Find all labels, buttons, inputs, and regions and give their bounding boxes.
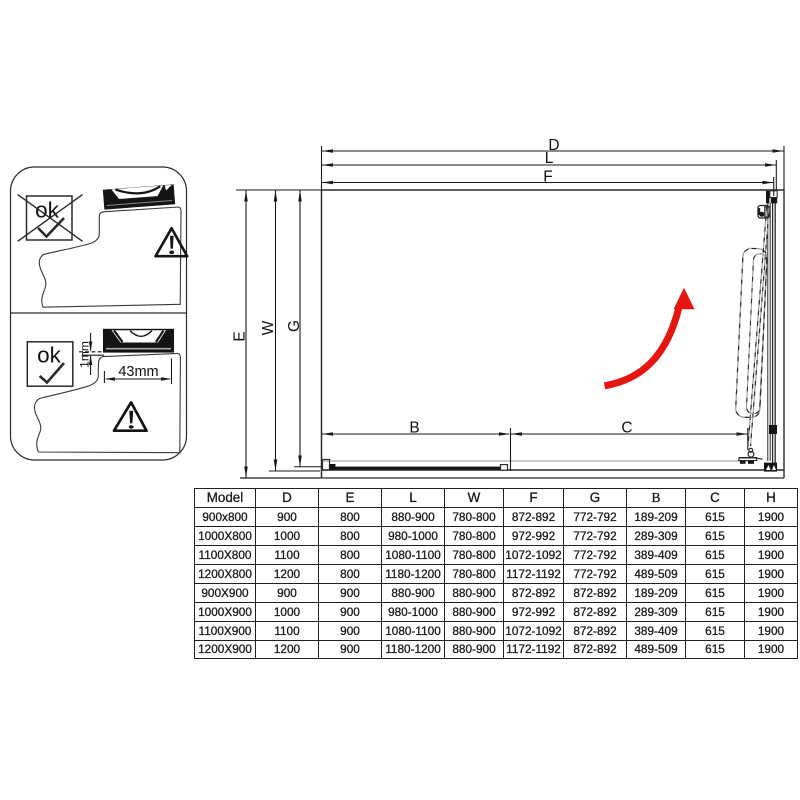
svg-text:F: F (543, 169, 552, 186)
svg-text:1mm: 1mm (78, 341, 92, 368)
svg-text:G: G (286, 320, 303, 332)
svg-text:C: C (621, 420, 632, 437)
svg-text:ok: ok (37, 343, 62, 368)
svg-text:E: E (232, 331, 249, 341)
svg-text:L: L (545, 150, 554, 167)
svg-text:W: W (260, 320, 277, 335)
svg-text:43mm: 43mm (118, 364, 158, 380)
svg-text:B: B (409, 420, 419, 437)
